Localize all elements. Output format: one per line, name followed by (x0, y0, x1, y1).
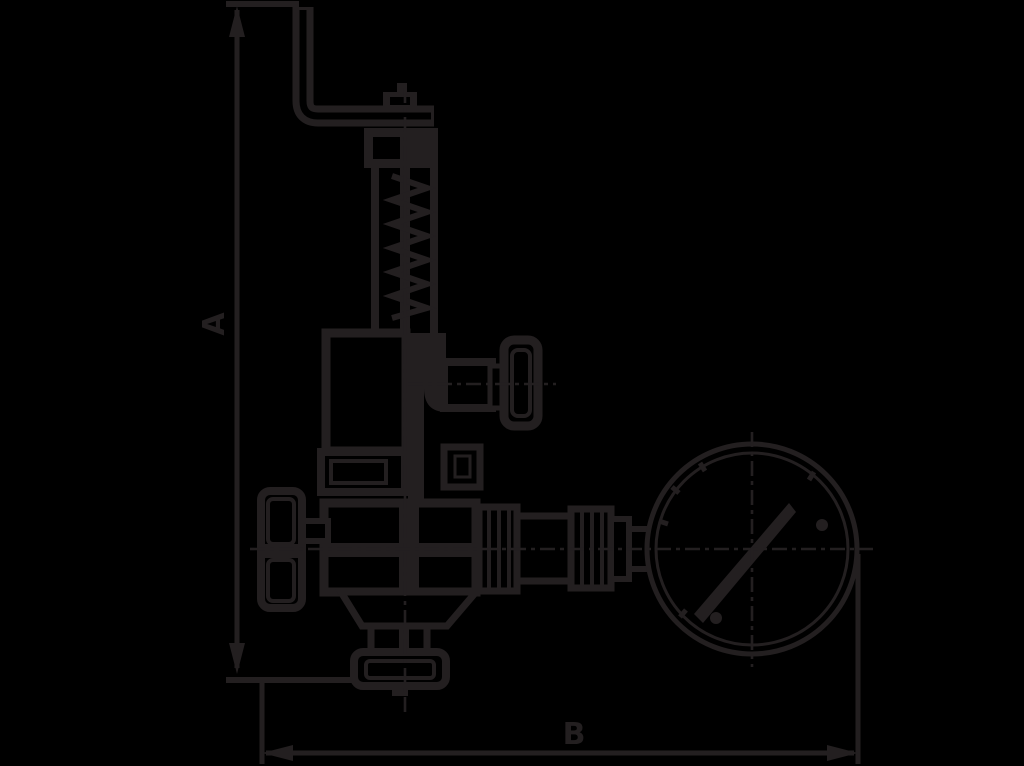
gauge-dot-right (816, 519, 828, 531)
bottom-flange (354, 652, 446, 696)
arrowhead-left (262, 745, 293, 761)
drawing-canvas: A B (0, 0, 1024, 766)
valve-technical-drawing: A B (0, 0, 1024, 766)
spring-bonnet (375, 166, 434, 336)
arrowhead-right (827, 745, 858, 761)
arrowhead-up (229, 6, 245, 37)
gauge-dot-left (710, 612, 722, 624)
upper-body (326, 333, 424, 452)
valve-body (300, 503, 476, 654)
valve-assembly (250, 7, 873, 712)
dimension-label-a: A (197, 312, 232, 336)
test-valve (424, 333, 538, 426)
mid-flange (321, 445, 480, 507)
body-taper (341, 592, 476, 626)
arrowhead-down (229, 643, 245, 674)
dimension-label-b: B (563, 717, 586, 752)
